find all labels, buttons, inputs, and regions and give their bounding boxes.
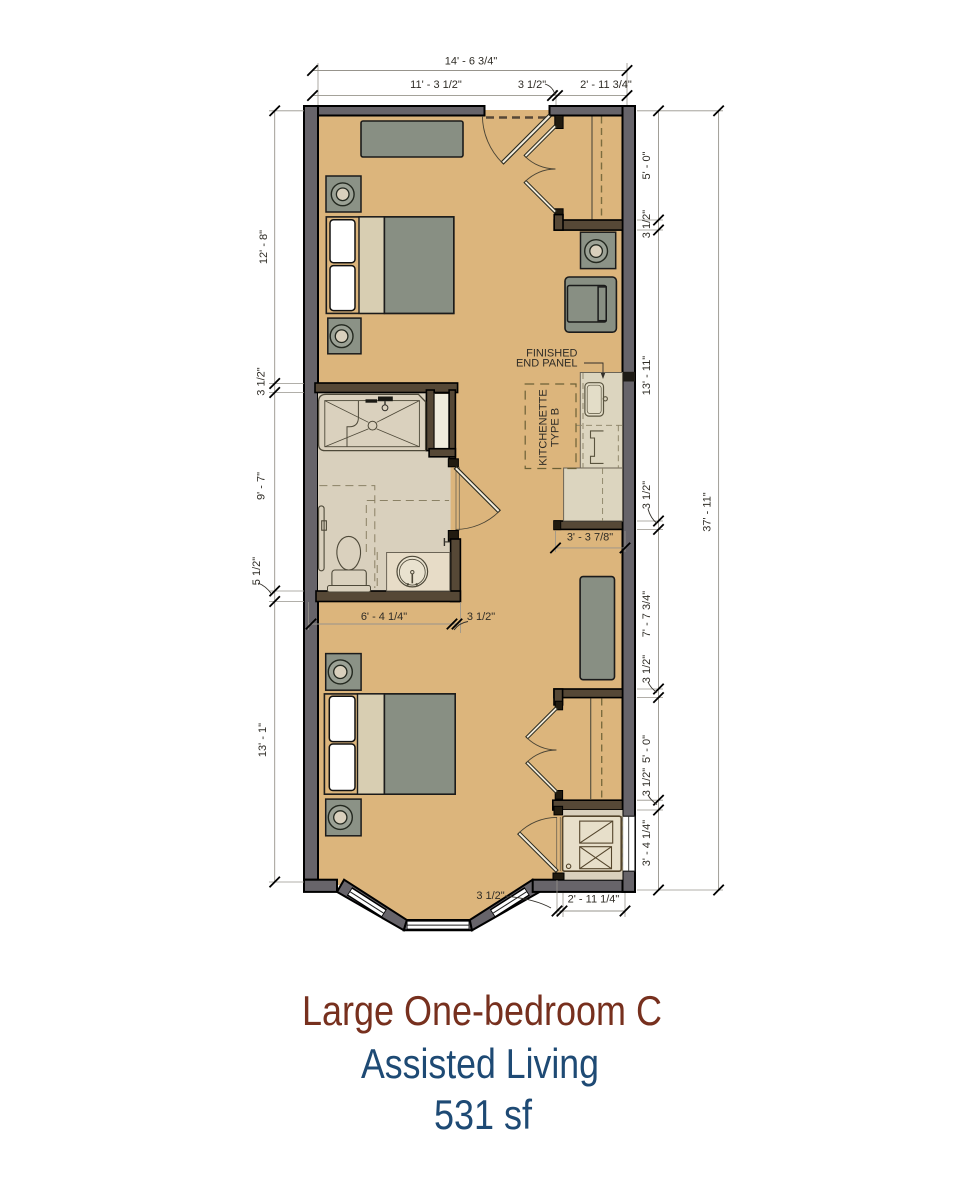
svg-text:Large One-bedroom C: Large One-bedroom C [302,987,662,1034]
svg-text:531 sf: 531 sf [434,1091,532,1138]
svg-text:3 1/2": 3 1/2" [256,367,268,395]
svg-text:3' - 4 1/4": 3' - 4 1/4" [641,820,653,866]
svg-text:KITCHENETTE: KITCHENETTE [537,389,549,465]
svg-text:2' - 11 3/4": 2' - 11 3/4" [580,79,632,91]
svg-text:9' - 7": 9' - 7" [256,472,268,500]
svg-text:13' - 11": 13' - 11" [641,356,653,396]
svg-text:3 1/2": 3 1/2" [518,79,546,91]
svg-text:3 1/2": 3 1/2" [641,655,653,683]
svg-text:11' - 3 1/2": 11' - 3 1/2" [410,79,462,91]
svg-text:5' - 0": 5' - 0" [641,151,653,179]
svg-text:6' - 4 1/4": 6' - 4 1/4" [361,611,407,623]
svg-text:5' - 0": 5' - 0" [641,735,653,763]
svg-text:5 1/2": 5 1/2" [251,557,263,585]
svg-text:3 1/2": 3 1/2" [641,210,653,238]
svg-text:END PANEL: END PANEL [516,358,578,370]
svg-text:3 1/2": 3 1/2" [641,768,653,796]
svg-text:37' - 11": 37' - 11" [702,492,714,532]
svg-text:14' - 6 3/4": 14' - 6 3/4" [445,56,498,68]
svg-text:7' - 7 3/4": 7' - 7 3/4" [641,591,653,637]
svg-text:Assisted Living: Assisted Living [361,1040,599,1087]
svg-text:3 1/2": 3 1/2" [641,481,653,509]
svg-text:3 1/2": 3 1/2" [476,890,504,902]
svg-text:3' - 3 7/8": 3' - 3 7/8" [567,532,613,544]
svg-text:2' - 11 1/4": 2' - 11 1/4" [568,894,620,906]
svg-text:13' - 1": 13' - 1" [257,723,269,757]
svg-text:12' - 8": 12' - 8" [258,230,270,264]
svg-text:3 1/2": 3 1/2" [467,611,495,623]
svg-text:TYPE B: TYPE B [550,408,562,447]
